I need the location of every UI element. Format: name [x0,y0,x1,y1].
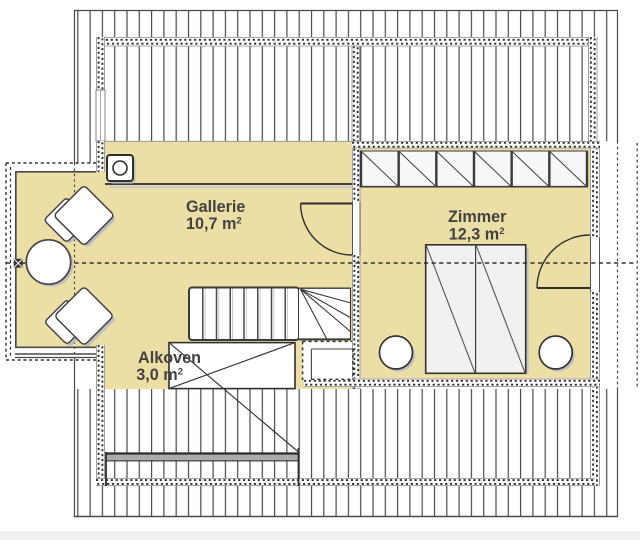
svg-text:10,7 m2: 10,7 m2 [186,215,242,233]
svg-text:12,3 m2: 12,3 m2 [449,225,505,243]
svg-text:Zimmer: Zimmer [448,208,507,226]
svg-text:Alkoven: Alkoven [138,349,201,367]
svg-text:3,0 m2: 3,0 m2 [136,366,183,384]
svg-text:Gallerie: Gallerie [186,198,245,216]
